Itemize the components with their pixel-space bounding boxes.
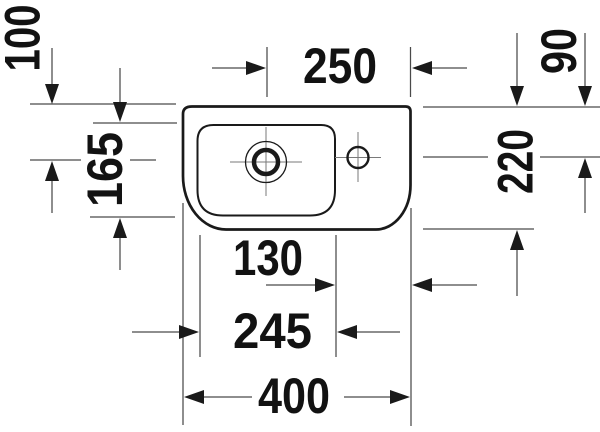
arrow-down-icon xyxy=(113,102,127,122)
dim-label-100: 100 xyxy=(0,5,51,72)
arrow-up-icon xyxy=(578,158,592,178)
arrow-right-icon xyxy=(179,325,199,339)
arrow-right-icon xyxy=(315,278,335,292)
dimension-drain-to-right-edge: 250 xyxy=(212,38,467,94)
arrow-right-icon xyxy=(390,390,410,404)
arrow-up-icon xyxy=(510,230,524,250)
arrow-down-icon xyxy=(45,84,59,104)
arrow-down-icon xyxy=(578,86,592,106)
washbasin-dimension-drawing: 100 165 250 90 220 130 xyxy=(0,0,600,432)
dim-label-400: 400 xyxy=(258,368,330,424)
arrow-down-icon xyxy=(510,86,524,106)
dim-label-90: 90 xyxy=(531,28,587,74)
dim-label-130: 130 xyxy=(233,230,303,286)
arrow-right-icon xyxy=(246,61,266,75)
arrow-left-icon xyxy=(412,61,432,75)
faucet-hole xyxy=(335,132,381,182)
dimension-bowl-to-right-edge: 130 xyxy=(233,230,477,292)
arrow-left-icon xyxy=(412,278,432,292)
dimension-overall-width: 400 xyxy=(184,368,410,424)
dim-label-245: 245 xyxy=(233,303,312,359)
dim-label-250: 250 xyxy=(303,38,377,94)
arrow-left-icon xyxy=(184,390,204,404)
technical-drawing-canvas: 100 165 250 90 220 130 xyxy=(0,0,600,432)
dim-label-220: 220 xyxy=(488,129,544,194)
arrow-up-icon xyxy=(113,218,127,238)
arrow-left-icon xyxy=(337,325,357,339)
dimension-bowl-depth: 165 xyxy=(77,68,133,270)
dimension-bowl-width: 245 xyxy=(132,303,400,359)
drain-hole xyxy=(230,127,302,196)
arrow-up-icon xyxy=(45,161,59,181)
dimension-drain-from-back: 100 xyxy=(0,5,59,214)
basin-shape xyxy=(183,107,411,230)
dim-label-165: 165 xyxy=(77,132,133,207)
